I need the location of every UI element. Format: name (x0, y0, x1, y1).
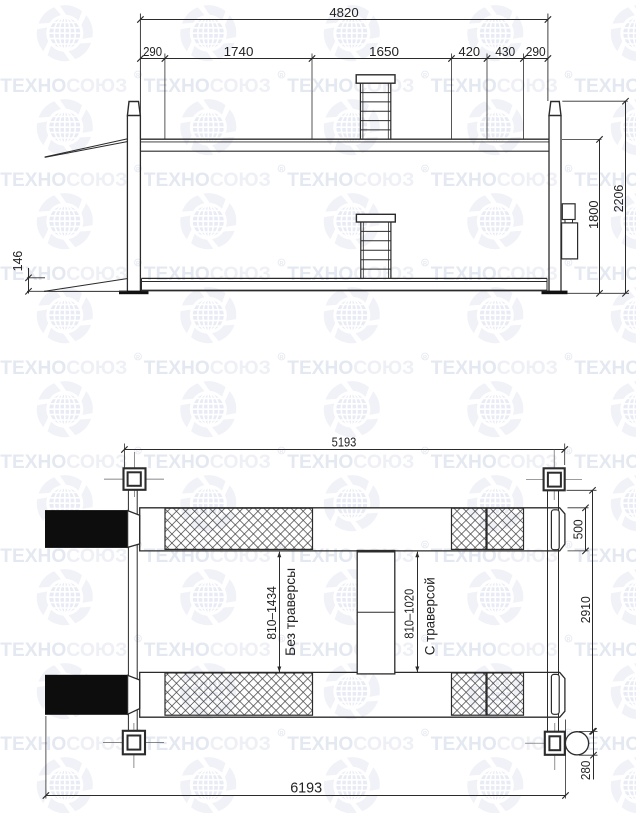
svg-text:R: R (136, 637, 140, 643)
svg-text:ТЕХНОСОЮЗ: ТЕХНОСОЮЗ (0, 546, 127, 567)
svg-text:ТЕХНОСОЮЗ: ТЕХНОСОЮЗ (144, 264, 271, 285)
svg-text:ТЕХНОСОЮЗ: ТЕХНОСОЮЗ (431, 452, 558, 473)
svg-text:R: R (566, 637, 570, 643)
svg-text:4820: 4820 (329, 5, 358, 20)
svg-text:2206: 2206 (611, 185, 626, 213)
svg-text:ТЕХНОСОЮЗ: ТЕХНОСОЮЗ (574, 170, 636, 191)
svg-text:ТЕХНОСОЮЗ: ТЕХНОСОЮЗ (574, 640, 636, 661)
svg-text:ТЕХНОСОЮЗ: ТЕХНОСОЮЗ (287, 452, 414, 473)
svg-text:430: 430 (495, 44, 515, 59)
svg-text:1800: 1800 (586, 201, 601, 230)
svg-text:146: 146 (10, 251, 25, 272)
svg-text:1650: 1650 (369, 44, 399, 59)
svg-text:ТЕХНОСОЮЗ: ТЕХНОСОЮЗ (431, 76, 558, 97)
svg-text:ТЕХНОСОЮЗ: ТЕХНОСОЮЗ (574, 264, 636, 285)
svg-text:R: R (136, 261, 140, 267)
svg-text:ТЕХНОСОЮЗ: ТЕХНОСОЮЗ (0, 640, 127, 661)
svg-text:ТЕХНОСОЮЗ: ТЕХНОСОЮЗ (144, 640, 271, 661)
svg-text:ТЕХНОСОЮЗ: ТЕХНОСОЮЗ (431, 264, 558, 285)
svg-text:R: R (279, 731, 283, 737)
svg-text:R: R (136, 73, 140, 79)
svg-text:R: R (566, 355, 570, 361)
svg-text:ТЕХНОСОЮЗ: ТЕХНОСОЮЗ (0, 76, 127, 97)
svg-text:R: R (423, 167, 427, 173)
svg-text:ТЕХНОСОЮЗ: ТЕХНОСОЮЗ (574, 358, 636, 379)
svg-text:С траверсой: С траверсой (421, 577, 437, 655)
svg-text:ТЕХНОСОЮЗ: ТЕХНОСОЮЗ (431, 734, 558, 755)
svg-text:ТЕХНОСОЮЗ: ТЕХНОСОЮЗ (287, 734, 414, 755)
svg-text:ТЕХНОСОЮЗ: ТЕХНОСОЮЗ (574, 546, 636, 567)
svg-text:500: 500 (571, 519, 586, 539)
svg-text:R: R (136, 167, 140, 173)
svg-text:R: R (136, 355, 140, 361)
svg-text:R: R (423, 355, 427, 361)
svg-text:420: 420 (459, 44, 481, 59)
svg-text:ТЕХНОСОЮЗ: ТЕХНОСОЮЗ (287, 358, 414, 379)
svg-text:290: 290 (526, 44, 546, 59)
svg-text:ТЕХНОСОЮЗ: ТЕХНОСОЮЗ (144, 358, 271, 379)
svg-text:ТЕХНОСОЮЗ: ТЕХНОСОЮЗ (144, 170, 271, 191)
svg-text:R: R (423, 543, 427, 549)
svg-text:2910: 2910 (578, 596, 593, 623)
svg-text:810–1434: 810–1434 (264, 586, 279, 640)
svg-text:280: 280 (578, 761, 593, 781)
svg-text:R: R (423, 731, 427, 737)
svg-text:ТЕХНОСОЮЗ: ТЕХНОСОЮЗ (431, 358, 558, 379)
svg-text:ТЕХНОСОЮЗ: ТЕХНОСОЮЗ (287, 264, 414, 285)
svg-text:R: R (566, 543, 570, 549)
svg-text:R: R (279, 355, 283, 361)
svg-text:R: R (566, 167, 570, 173)
svg-text:ТЕХНОСОЮЗ: ТЕХНОСОЮЗ (0, 734, 127, 755)
svg-text:R: R (566, 73, 570, 79)
svg-text:ТЕХНОСОЮЗ: ТЕХНОСОЮЗ (144, 734, 271, 755)
svg-text:R: R (279, 73, 283, 79)
svg-text:R: R (279, 261, 283, 267)
svg-text:ТЕХНОСОЮЗ: ТЕХНОСОЮЗ (0, 452, 127, 473)
svg-text:ТЕХНОСОЮЗ: ТЕХНОСОЮЗ (431, 640, 558, 661)
svg-text:R: R (566, 261, 570, 267)
svg-text:R: R (423, 261, 427, 267)
svg-text:ТЕХНОСОЮЗ: ТЕХНОСОЮЗ (0, 358, 127, 379)
svg-text:Без траверсы: Без траверсы (282, 568, 298, 656)
svg-text:ТЕХНОСОЮЗ: ТЕХНОСОЮЗ (431, 170, 558, 191)
svg-text:R: R (423, 73, 427, 79)
svg-text:1740: 1740 (224, 44, 254, 59)
svg-text:R: R (566, 449, 570, 455)
svg-text:ТЕХНОСОЮЗ: ТЕХНОСОЮЗ (574, 452, 636, 473)
svg-text:ТЕХНОСОЮЗ: ТЕХНОСОЮЗ (287, 170, 414, 191)
svg-text:ТЕХНОСОЮЗ: ТЕХНОСОЮЗ (144, 452, 271, 473)
svg-text:ТЕХНОСОЮЗ: ТЕХНОСОЮЗ (0, 170, 127, 191)
svg-text:R: R (279, 167, 283, 173)
svg-text:810–1020: 810–1020 (402, 589, 417, 639)
svg-text:ТЕХНОСОЮЗ: ТЕХНОСОЮЗ (574, 76, 636, 97)
svg-text:5193: 5193 (332, 435, 357, 450)
svg-text:ТЕХНОСОЮЗ: ТЕХНОСОЮЗ (144, 76, 271, 97)
svg-text:6193: 6193 (290, 780, 322, 797)
svg-text:290: 290 (143, 44, 162, 59)
